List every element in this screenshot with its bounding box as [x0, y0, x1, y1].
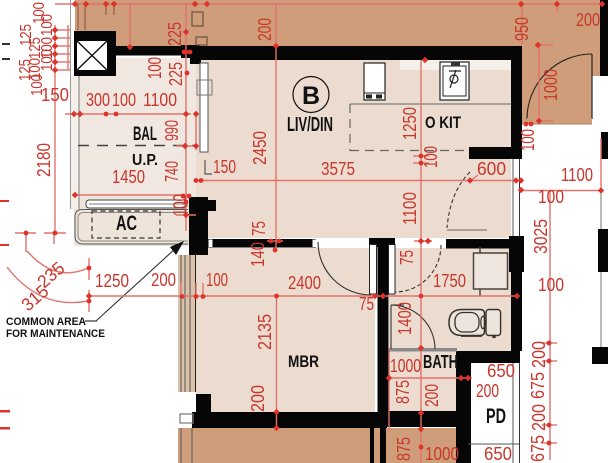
- svg-text:675: 675: [528, 372, 548, 399]
- svg-text:AC: AC: [116, 212, 137, 235]
- svg-text:200: 200: [529, 341, 549, 368]
- svg-text:1000: 1000: [541, 69, 561, 101]
- svg-text:BAL: BAL: [133, 124, 157, 145]
- svg-text:200: 200: [529, 404, 549, 431]
- svg-text:LIV/DIN: LIV/DIN: [287, 114, 333, 136]
- svg-text:1450: 1450: [112, 167, 145, 187]
- svg-text:200: 200: [422, 384, 442, 407]
- svg-text:140: 140: [248, 242, 268, 267]
- svg-text:1100: 1100: [561, 165, 593, 185]
- svg-text:225: 225: [165, 22, 185, 46]
- svg-text:200: 200: [151, 270, 176, 290]
- svg-text:100: 100: [29, 74, 46, 96]
- svg-text:675: 675: [528, 435, 548, 462]
- svg-text:3025: 3025: [531, 219, 551, 254]
- svg-text:1000: 1000: [390, 356, 421, 376]
- svg-text:2180: 2180: [34, 143, 54, 177]
- svg-text:200: 200: [476, 381, 499, 401]
- svg-text:950: 950: [512, 17, 532, 41]
- svg-text:200: 200: [576, 10, 600, 30]
- svg-text:100: 100: [39, 14, 56, 36]
- svg-text:COMMON AREA: COMMON AREA: [6, 316, 86, 328]
- svg-text:B: B: [302, 82, 320, 110]
- svg-text:225: 225: [166, 62, 186, 86]
- svg-text:FOR MAINTENANCE: FOR MAINTENANCE: [6, 328, 105, 340]
- svg-text:100: 100: [206, 270, 228, 290]
- svg-text:150: 150: [213, 157, 236, 177]
- svg-text:100: 100: [170, 194, 190, 216]
- svg-text:650: 650: [487, 361, 515, 381]
- svg-text:200: 200: [248, 385, 268, 412]
- svg-text:740: 740: [162, 161, 182, 182]
- svg-text:75: 75: [397, 250, 417, 265]
- svg-text:1400: 1400: [395, 302, 415, 335]
- svg-text:1250: 1250: [400, 107, 420, 140]
- svg-text:875: 875: [393, 380, 413, 404]
- svg-text:1100: 1100: [400, 192, 420, 225]
- svg-text:2450: 2450: [250, 131, 270, 165]
- svg-text:875: 875: [394, 437, 414, 461]
- svg-text:300: 300: [86, 90, 110, 110]
- svg-text:3575: 3575: [321, 159, 355, 179]
- svg-text:650: 650: [484, 444, 512, 463]
- svg-text:1250: 1250: [95, 271, 129, 291]
- svg-text:200: 200: [255, 18, 275, 41]
- svg-text:990: 990: [162, 120, 182, 141]
- svg-text:100: 100: [518, 129, 538, 151]
- svg-text:75: 75: [249, 221, 269, 236]
- svg-text:BATH: BATH: [423, 352, 458, 372]
- svg-text:1100: 1100: [143, 90, 177, 110]
- svg-text:100: 100: [112, 90, 136, 110]
- svg-text:100: 100: [538, 275, 564, 295]
- svg-text:MBR: MBR: [288, 353, 319, 371]
- svg-text:100: 100: [538, 187, 564, 207]
- svg-text:100: 100: [421, 146, 441, 168]
- svg-text:PD: PD: [486, 405, 506, 428]
- svg-text:2400: 2400: [288, 273, 321, 293]
- svg-text:O KIT: O KIT: [425, 114, 461, 132]
- svg-text:75: 75: [359, 294, 374, 314]
- svg-text:1000: 1000: [425, 444, 459, 463]
- svg-text:1750: 1750: [433, 271, 466, 291]
- svg-text:600: 600: [477, 159, 506, 179]
- svg-text:100: 100: [145, 57, 165, 79]
- svg-text:2135: 2135: [255, 314, 275, 350]
